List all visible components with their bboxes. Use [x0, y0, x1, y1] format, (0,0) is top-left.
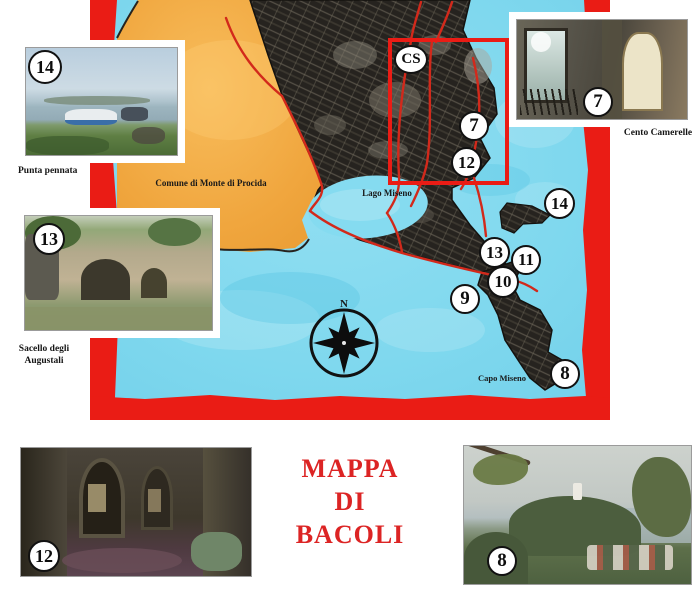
label-comune: Comune di Monte di Procida [155, 178, 267, 188]
title-line-1: MAPPA [268, 452, 432, 485]
page-title: MAPPA DI BACOLI [268, 452, 432, 551]
ruin-arch [81, 259, 130, 300]
village-roofs [587, 545, 673, 570]
label-lago-miseno: Lago Miseno [362, 188, 412, 198]
marker-8: 8 [550, 359, 580, 389]
lit-room-2 [148, 489, 162, 512]
photo-badge-13: 13 [33, 223, 65, 255]
floor-glow [62, 548, 182, 574]
title-line-2: DI [268, 485, 432, 518]
label-capo-miseno: Capo Miseno [478, 373, 526, 383]
marker-cs: CS [394, 45, 428, 74]
doorway-right [622, 32, 663, 111]
railing [520, 89, 578, 115]
bush-right [148, 218, 200, 245]
gear-pile [132, 127, 165, 144]
caption-sacello: Sacello degli Augustali [8, 343, 80, 367]
lit-room-1 [88, 484, 106, 512]
caption-sacello-line2: Augustali [8, 355, 80, 367]
marker-10: 10 [487, 266, 519, 298]
bacoli-map-page: N Comune di Monte di Procida Lago Miseno… [0, 0, 700, 589]
boat-dark [121, 107, 148, 121]
boat-white [65, 109, 116, 125]
marker-14: 14 [544, 188, 575, 219]
window-glow [531, 32, 551, 52]
marker-11: 11 [511, 245, 541, 275]
caption-sacello-line1: Sacello degli [8, 343, 80, 355]
marker-12: 12 [451, 147, 482, 178]
caption-cento-camerelle: Cento Camerelle [620, 128, 696, 138]
lighthouse [573, 483, 582, 500]
photo-badge-7: 7 [583, 87, 613, 117]
mossy-stone [191, 532, 242, 570]
caption-punta-pennata: Punta pennata [18, 166, 77, 176]
photo-badge-12: 12 [28, 540, 60, 572]
marker-7: 7 [459, 111, 489, 141]
ruin-arch-2 [141, 268, 167, 298]
leaves-left [473, 454, 527, 484]
marker-9: 9 [450, 284, 480, 314]
grass-shadow [26, 136, 109, 155]
photo-badge-8: 8 [487, 546, 517, 576]
title-line-3: BACOLI [268, 518, 432, 551]
harbor-land [44, 96, 150, 105]
compass-north-label: N [340, 298, 348, 310]
photo-badge-14: 14 [28, 50, 62, 84]
water-pool [25, 307, 212, 330]
marker-13: 13 [479, 237, 510, 268]
